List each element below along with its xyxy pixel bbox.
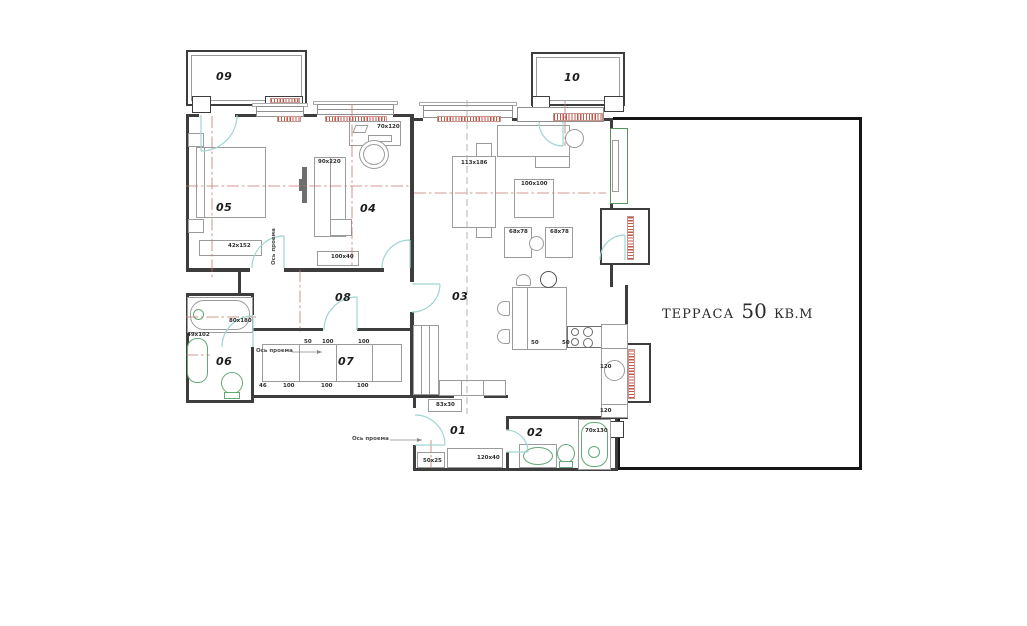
dim-tub06: 80x180 bbox=[229, 319, 252, 325]
dim-wardrobe04: 90x220 bbox=[318, 160, 341, 166]
wall-05-bottom-left bbox=[186, 268, 250, 272]
terrace-wall-top bbox=[613, 117, 862, 120]
dim-sink06: 49x102 bbox=[187, 333, 210, 339]
wall-08-07-left bbox=[253, 328, 323, 331]
sofa bbox=[452, 156, 496, 228]
terrace-unit: КВ.М bbox=[774, 307, 813, 322]
door-balcony-05 bbox=[201, 115, 237, 151]
wall-01-left-upper bbox=[413, 397, 416, 408]
balcony-09-step-left bbox=[192, 96, 211, 113]
radiator-balcony09 bbox=[270, 98, 300, 103]
terrace-door-box bbox=[600, 208, 650, 265]
burner bbox=[571, 338, 579, 346]
room-number-04: 04 bbox=[360, 202, 376, 215]
bath-faucet-room02 bbox=[588, 446, 600, 458]
seg-bot-100a: 100 bbox=[283, 384, 294, 390]
cabinet-line bbox=[421, 325, 422, 395]
tv-bracket bbox=[299, 179, 302, 191]
dim-bench01: 50x25 bbox=[423, 459, 442, 465]
dim-kitchen-50b: 50 bbox=[562, 341, 570, 347]
cabinet-top bbox=[497, 125, 570, 157]
wall-02-left-lower bbox=[506, 452, 509, 471]
ottoman bbox=[529, 236, 544, 251]
dining-chair bbox=[497, 301, 510, 316]
wall-04-03 bbox=[410, 114, 414, 282]
terrace-wall-right bbox=[859, 117, 862, 470]
cabinet-top-ext bbox=[535, 156, 570, 168]
wardrobe-divider bbox=[336, 344, 337, 382]
wall-06-bottom bbox=[186, 400, 254, 403]
room-number-02: 02 bbox=[527, 426, 543, 439]
door-entry bbox=[415, 415, 445, 445]
wall-corridor-left bbox=[238, 268, 241, 295]
toilet-bowl-room06 bbox=[221, 372, 243, 394]
wall-06-top bbox=[186, 293, 254, 296]
bath-niche bbox=[610, 421, 624, 438]
counter-line bbox=[601, 348, 628, 349]
seg-top-100b: 100 bbox=[358, 340, 369, 346]
wall-08-07-right bbox=[357, 328, 410, 331]
seg-top-50: 50 bbox=[304, 340, 312, 346]
burner bbox=[583, 338, 593, 348]
toilet-tank-room06 bbox=[224, 392, 240, 399]
wall-06-right-lower bbox=[251, 347, 254, 403]
wall-01-left-lower bbox=[413, 445, 416, 470]
dining-chair-round bbox=[540, 271, 557, 288]
wall-03-right-mid bbox=[610, 263, 613, 287]
bed-headboard-line bbox=[204, 147, 205, 218]
radiator-kitchen bbox=[628, 349, 635, 399]
cabinet-line bbox=[429, 325, 430, 395]
room-number-06: 06 bbox=[216, 355, 232, 368]
dim-chair03r: 68x78 bbox=[550, 230, 569, 236]
wall-02-left-upper bbox=[506, 416, 509, 430]
room-number-08: 08 bbox=[335, 291, 351, 304]
tv-room05 bbox=[302, 167, 307, 203]
seg-bot-46: 46 bbox=[259, 384, 267, 390]
stool bbox=[330, 219, 352, 236]
dining-chair bbox=[516, 274, 531, 286]
nightstand bbox=[188, 219, 204, 233]
wall-07-bottom bbox=[253, 395, 406, 398]
door-hall-to-living bbox=[412, 284, 440, 312]
wardrobe-divider bbox=[299, 344, 300, 382]
burner bbox=[571, 328, 579, 336]
dim-table03: 100x100 bbox=[521, 182, 548, 188]
dim-dresser05: 42x152 bbox=[228, 244, 251, 250]
balcony-09-glazing bbox=[191, 55, 302, 101]
dim-desk04: 70x120 bbox=[377, 125, 400, 131]
terrace-area: 50 bbox=[741, 299, 766, 323]
cabinet-line bbox=[461, 380, 462, 396]
axis-label-bath: Ось проема bbox=[256, 349, 293, 355]
door-room04 bbox=[382, 240, 410, 268]
dim-kitchen-50a: 50 bbox=[531, 341, 539, 347]
wall-05-bottom-right bbox=[284, 268, 384, 272]
terrace-name: ТЕРРАСА bbox=[662, 307, 734, 322]
dining-chair bbox=[497, 329, 510, 344]
seg-bot-100b: 100 bbox=[321, 384, 332, 390]
dim-bench04: 100x40 bbox=[331, 255, 354, 261]
dim-closet01: 120x40 bbox=[477, 456, 500, 462]
dining-table-line bbox=[527, 288, 528, 349]
dim-sofa03: 113x186 bbox=[461, 161, 488, 167]
wall-top-seg bbox=[186, 114, 199, 117]
sink-room06 bbox=[187, 338, 208, 383]
wardrobe-divider bbox=[372, 344, 373, 382]
room-number-03: 03 bbox=[452, 290, 468, 303]
radiator-room03 bbox=[437, 116, 501, 122]
room-number-10: 10 bbox=[564, 71, 580, 84]
burner bbox=[583, 327, 593, 337]
wall-top-seg bbox=[235, 114, 257, 117]
nightstand bbox=[188, 133, 204, 147]
radiator-balcony-door bbox=[553, 113, 603, 121]
dim-cab01: 83x30 bbox=[436, 403, 455, 409]
floor-plan: ТЕРРАСА 50 КВ.М 09 10 bbox=[0, 0, 1027, 626]
lower-cabinets bbox=[439, 380, 506, 396]
room-number-01: 01 bbox=[450, 424, 466, 437]
wall-top-seg bbox=[303, 114, 317, 117]
bath-faucet-room06 bbox=[193, 309, 204, 320]
sink-room02 bbox=[523, 447, 553, 465]
counter-line bbox=[601, 404, 628, 405]
desk-chair-inner bbox=[363, 144, 385, 165]
seg-top-100a: 100 bbox=[322, 340, 333, 346]
dim-tub02: 70x130 bbox=[585, 429, 608, 435]
axis-label-vertical: Ось проема bbox=[272, 227, 278, 265]
window-room04 bbox=[317, 104, 394, 115]
radiator-room05 bbox=[277, 116, 301, 122]
axis-label-entry: Ось проема bbox=[352, 437, 389, 443]
balcony-10-step-right bbox=[604, 96, 624, 112]
ceiling-lamp bbox=[565, 129, 584, 148]
room-number-05: 05 bbox=[216, 201, 232, 214]
dim-chair03l: 68x78 bbox=[509, 230, 528, 236]
tv-room03 bbox=[612, 140, 619, 192]
room-number-07: 07 bbox=[338, 355, 354, 368]
radiator-terrace-door bbox=[627, 216, 634, 260]
room-number-09: 09 bbox=[216, 70, 232, 83]
tall-cabinet bbox=[413, 325, 439, 395]
terrace-wall-bottom bbox=[619, 467, 862, 470]
dim-kitchen-120a: 120 bbox=[600, 365, 611, 371]
wall-top-seg bbox=[414, 118, 423, 121]
seg-bot-100c: 100 bbox=[357, 384, 368, 390]
dining-table bbox=[512, 287, 567, 350]
dim-kitchen-120b: 120 bbox=[600, 409, 611, 415]
toilet-tank-room02 bbox=[559, 461, 573, 468]
cabinet-line bbox=[483, 380, 484, 396]
terrace-label: ТЕРРАСА 50 КВ.М bbox=[662, 299, 813, 323]
